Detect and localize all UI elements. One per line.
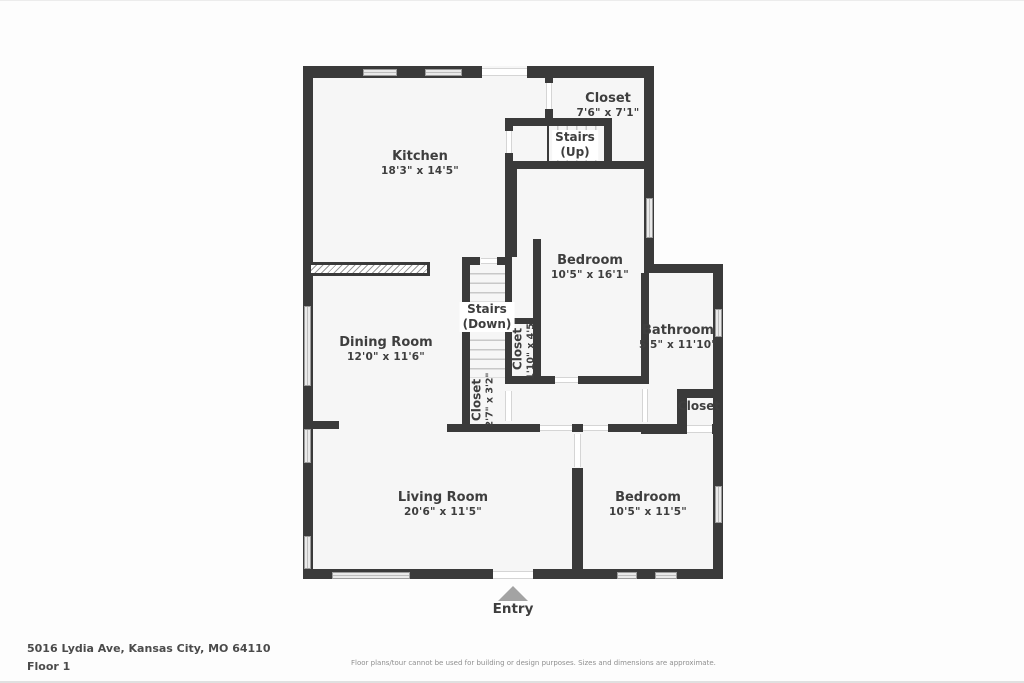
entry-label: Entry xyxy=(493,601,534,617)
window xyxy=(304,306,311,386)
door-opening xyxy=(583,425,608,431)
room-label-closet-under-stairs: Closet 2'7" x 3'2" xyxy=(470,373,497,428)
wall-segment xyxy=(572,424,583,432)
wall-segment xyxy=(527,66,653,78)
floor-plan-canvas: Kitchen 18'3" x 14'5" Closet 7'6" x 7'1"… xyxy=(0,0,1024,683)
window xyxy=(617,572,637,579)
window xyxy=(304,536,311,569)
wall-segment xyxy=(712,424,723,434)
window xyxy=(655,572,677,579)
kitchen-counter xyxy=(308,262,430,276)
room-label-bedroom-upper: Bedroom 10'5" x 16'1" xyxy=(551,253,629,282)
wall-segment xyxy=(644,264,723,273)
property-address: 5016 Lydia Ave, Kansas City, MO 64110 xyxy=(27,642,270,655)
room-label-dining-room: Dining Room 12'0" x 11'6" xyxy=(339,335,432,364)
wall-segment xyxy=(677,389,723,398)
wall-segment xyxy=(604,126,612,161)
floor-label: Floor 1 xyxy=(27,660,70,673)
window xyxy=(304,429,311,463)
wall-segment xyxy=(497,257,512,265)
door-opening xyxy=(687,425,712,433)
room-label-closet-top: Closet 7'6" x 7'1" xyxy=(577,91,640,120)
window xyxy=(646,198,653,238)
window xyxy=(715,486,722,523)
wall-segment xyxy=(505,161,653,169)
wall-segment xyxy=(608,424,641,432)
room-label-bedroom-lower: Bedroom 10'5" x 11'5" xyxy=(609,490,687,519)
door-opening-entry xyxy=(493,571,533,579)
entry-arrow-icon xyxy=(498,586,528,601)
window xyxy=(425,69,462,76)
wall-segment xyxy=(641,424,687,434)
room-label-closet-bedroom2: Closet xyxy=(678,399,720,414)
window xyxy=(332,572,410,579)
wall-segment xyxy=(572,468,583,569)
room-label-bathroom: Bathroom 5'5" x 11'10" xyxy=(639,323,717,352)
door-opening xyxy=(482,68,527,76)
wall-segment xyxy=(644,66,654,273)
wall-segment xyxy=(303,421,339,429)
door-opening xyxy=(505,391,512,421)
wall-segment xyxy=(578,376,641,384)
room-label-kitchen: Kitchen 18'3" x 14'5" xyxy=(381,149,459,178)
door-opening xyxy=(506,131,512,153)
door-opening xyxy=(555,377,578,383)
door-opening xyxy=(642,389,648,422)
room-label-closet-hall: Closet 1'10" x 4'5" xyxy=(511,318,538,380)
door-opening xyxy=(574,434,581,467)
room-label-living-room: Living Room 20'6" x 11'5" xyxy=(398,490,488,519)
door-opening xyxy=(546,83,552,109)
window xyxy=(363,69,397,76)
door-opening xyxy=(540,425,572,431)
door-opening xyxy=(481,258,497,264)
room-label-stairs-up: Stairs (Up) xyxy=(552,130,598,160)
room-label-stairs-down: Stairs (Down) xyxy=(460,302,515,332)
disclaimer-text: Floor plans/tour cannot be used for buil… xyxy=(351,659,716,667)
wall-segment xyxy=(505,153,513,161)
wall-segment xyxy=(505,169,517,257)
wall-segment xyxy=(462,257,480,265)
